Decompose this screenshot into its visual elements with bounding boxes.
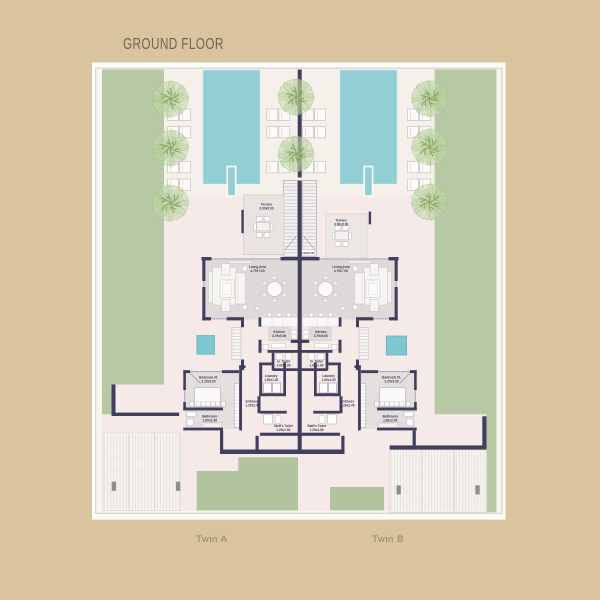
svg-text:1.60x1.80: 1.60x1.80	[276, 363, 290, 367]
svg-text:3.20x3.50: 3.20x3.50	[201, 380, 215, 384]
svg-text:1.60x2.45: 1.60x2.45	[383, 418, 397, 422]
svg-text:4.79x7.00: 4.79x7.00	[250, 269, 264, 273]
svg-text:1.20x1.80: 1.20x1.80	[276, 428, 290, 432]
svg-text:3.90x5.00: 3.90x5.00	[334, 222, 348, 226]
svg-text:3.79x5.00: 3.79x5.00	[272, 334, 286, 338]
svg-text:3.79x5.00: 3.79x5.00	[314, 334, 328, 338]
svg-text:1.20x2.45: 1.20x2.45	[245, 403, 259, 407]
svg-text:1.60x2.45: 1.60x2.45	[203, 418, 217, 422]
svg-text:3.90x5.00: 3.90x5.00	[259, 206, 273, 210]
svg-text:1.60x1.92: 1.60x1.92	[264, 378, 278, 382]
svg-text:1.20x2.45: 1.20x2.45	[340, 403, 354, 407]
svg-text:2.90x5.00: 2.90x5.00	[301, 251, 315, 255]
svg-text:1.60x1.92: 1.60x1.92	[322, 378, 336, 382]
svg-text:3.20x3.50: 3.20x3.50	[384, 380, 398, 384]
svg-text:4.79x7.00: 4.79x7.00	[334, 269, 348, 273]
svg-text:1.20x1.80: 1.20x1.80	[310, 428, 324, 432]
svg-text:1.60x1.80: 1.60x1.80	[309, 363, 323, 367]
